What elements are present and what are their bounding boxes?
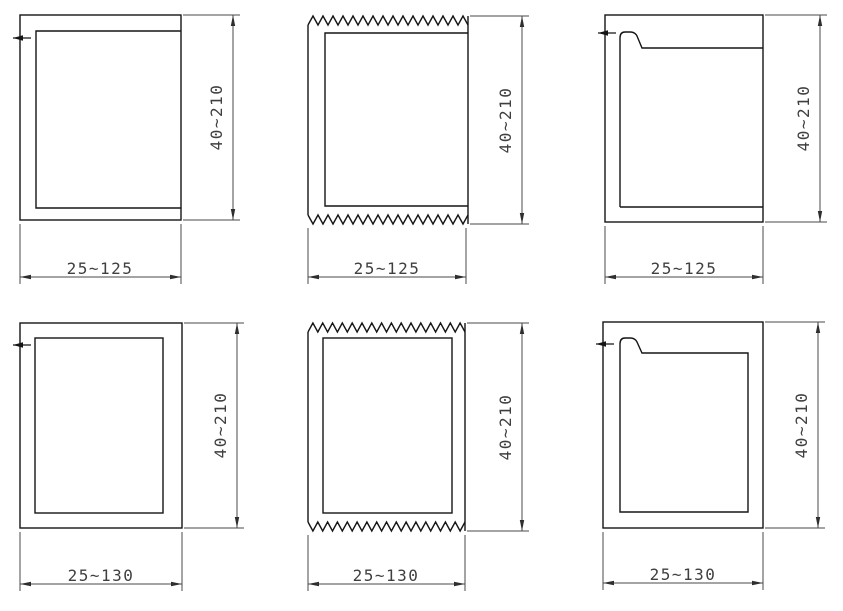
arrow-up-icon — [520, 323, 524, 334]
edge-marker-arrow-icon — [13, 342, 23, 347]
drawing-bottom-right: 40~210 25~130 — [596, 322, 825, 590]
edge-marker-arrow-icon — [596, 341, 606, 346]
arrow-right-icon — [171, 582, 182, 586]
arrow-right-icon — [455, 275, 466, 279]
width-dimension: 25~125 — [308, 228, 466, 284]
arrow-right-icon — [752, 581, 763, 585]
inner-profile-hooked-lip — [620, 338, 748, 512]
height-dimension: 40~210 — [183, 15, 240, 220]
serrated-top-edge — [308, 16, 468, 25]
serrated-bottom-edge — [308, 215, 468, 224]
height-dimension: 40~210 — [184, 323, 244, 528]
height-dimension-label: 40~210 — [211, 392, 230, 459]
width-dimension: 25~125 — [605, 226, 763, 284]
arrow-down-icon — [816, 517, 820, 528]
drawing-top-middle: 40~210 25~125 — [308, 16, 529, 284]
width-dimension-label: 25~125 — [67, 259, 134, 278]
arrow-down-icon — [818, 211, 822, 222]
arrow-right-icon — [454, 582, 465, 586]
inner-profile-outline — [35, 338, 163, 513]
cad-sheet-svg: 40~210 25~125 40~210 25~125 — [0, 0, 843, 611]
arrow-left-icon — [605, 275, 616, 279]
outer-profile-outline — [20, 15, 181, 220]
height-dimension-label: 40~210 — [792, 392, 811, 459]
arrow-up-icon — [816, 322, 820, 333]
width-dimension: 25~130 — [20, 532, 182, 591]
arrow-down-icon — [520, 213, 524, 224]
inner-profile-outline — [36, 31, 181, 208]
height-dimension: 40~210 — [765, 322, 825, 528]
height-dimension: 40~210 — [467, 323, 529, 531]
height-dimension: 40~210 — [765, 15, 827, 222]
serrated-top-edge — [308, 323, 465, 332]
arrow-up-icon — [231, 15, 235, 26]
width-dimension: 25~125 — [20, 224, 181, 284]
height-dimension-label: 40~210 — [496, 87, 515, 154]
drawing-bottom-middle: 40~210 25~130 — [308, 323, 529, 591]
outer-profile-outline — [605, 15, 763, 222]
arrow-left-icon — [20, 275, 31, 279]
inner-profile-hooked-lip — [620, 32, 763, 207]
inner-profile-outline — [325, 33, 468, 206]
arrow-down-icon — [520, 520, 524, 531]
arrow-right-icon — [170, 275, 181, 279]
drawing-top-left: 40~210 25~125 — [13, 15, 240, 284]
drawing-top-right: 40~210 25~125 — [598, 15, 827, 284]
width-dimension-label: 25~130 — [353, 566, 420, 585]
width-dimension-label: 25~130 — [68, 566, 135, 585]
height-dimension-label: 40~210 — [207, 84, 226, 151]
height-dimension: 40~210 — [470, 16, 529, 224]
edge-marker-arrow-icon — [13, 35, 23, 40]
width-dimension-label: 25~130 — [650, 565, 717, 584]
arrow-left-icon — [308, 582, 319, 586]
drawing-bottom-left: 40~210 25~130 — [13, 323, 244, 591]
arrow-down-icon — [235, 517, 239, 528]
width-dimension: 25~130 — [603, 532, 763, 590]
height-dimension-label: 40~210 — [496, 394, 515, 461]
serrated-bottom-edge — [308, 522, 465, 531]
inner-profile-outline — [323, 338, 452, 513]
arrow-up-icon — [235, 323, 239, 334]
width-dimension-label: 25~125 — [651, 259, 718, 278]
width-dimension: 25~130 — [308, 535, 465, 591]
arrow-right-icon — [752, 275, 763, 279]
drawing-sheet: 40~210 25~125 40~210 25~125 — [0, 0, 843, 611]
height-dimension-label: 40~210 — [794, 85, 813, 152]
arrow-up-icon — [520, 16, 524, 27]
arrow-up-icon — [818, 15, 822, 26]
arrow-left-icon — [308, 275, 319, 279]
width-dimension-label: 25~125 — [354, 259, 421, 278]
arrow-left-icon — [603, 581, 614, 585]
arrow-left-icon — [20, 582, 31, 586]
outer-profile-outline — [20, 323, 182, 528]
edge-marker-arrow-icon — [598, 30, 608, 35]
arrow-down-icon — [231, 209, 235, 220]
